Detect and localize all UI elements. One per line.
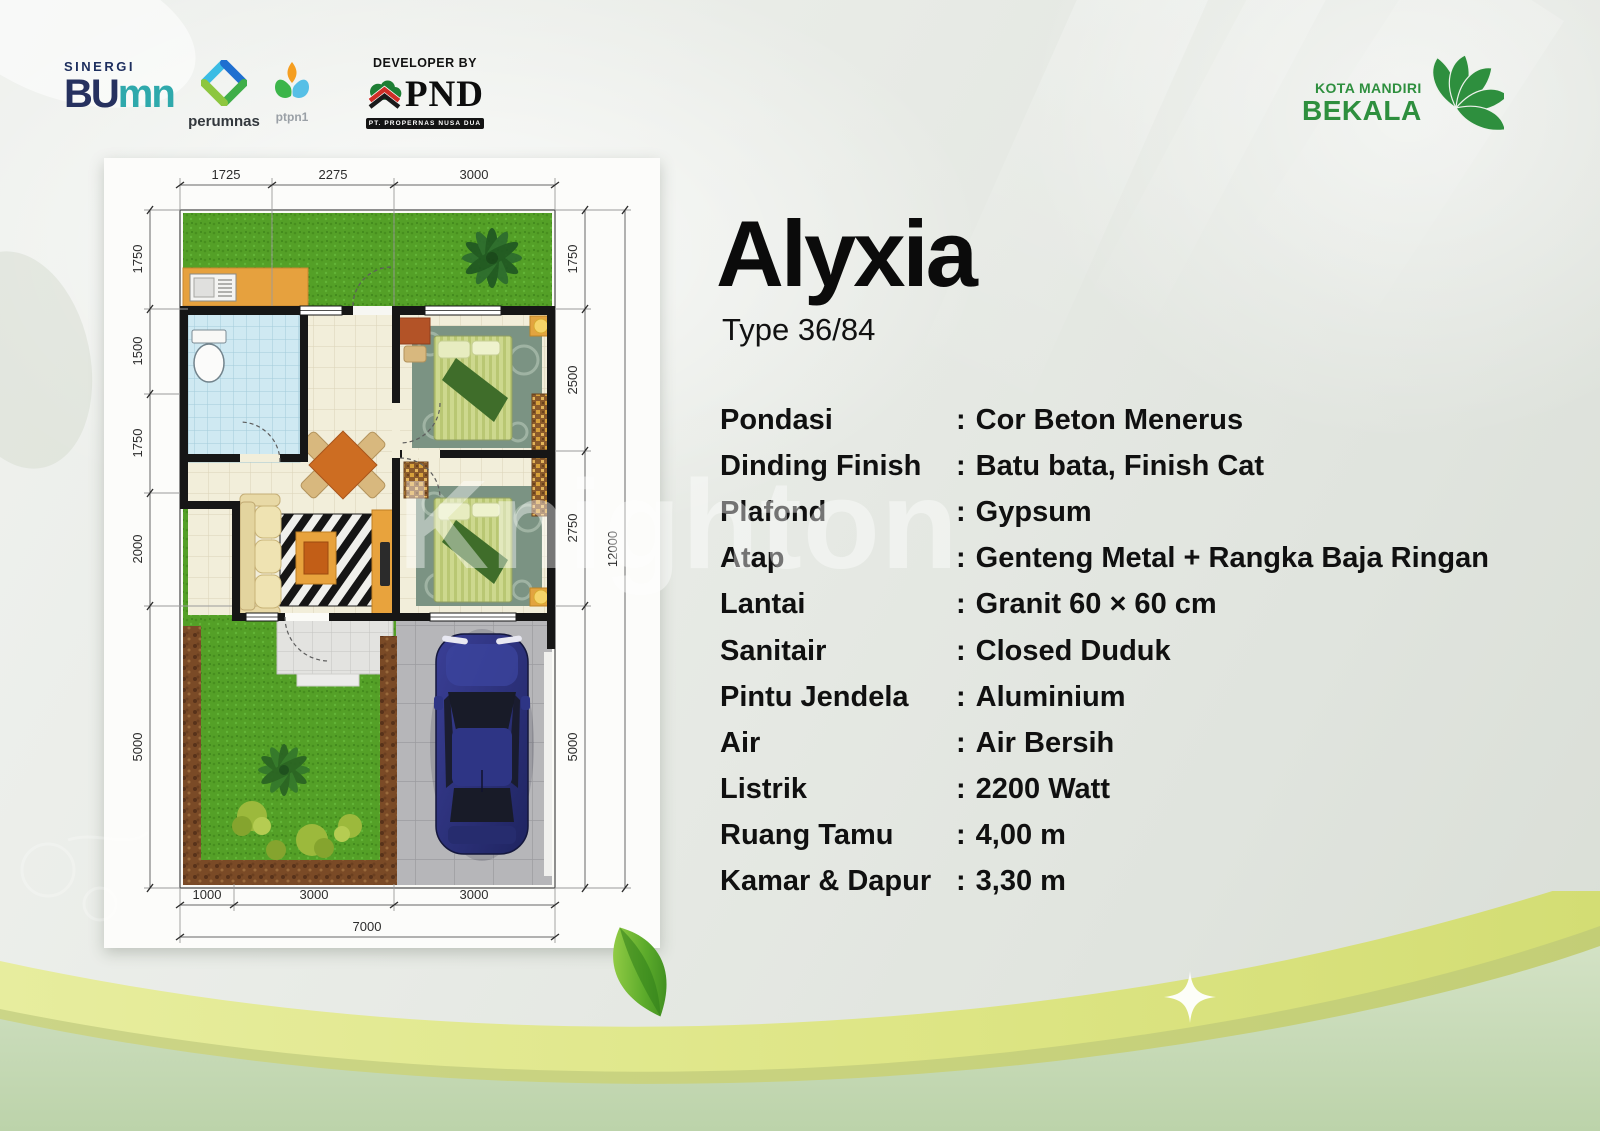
dimension-label: 5000 [565,733,580,762]
spec-value: Batu bata, Finish Cat [976,450,1264,483]
type-subtitle: Type 36/84 [722,312,875,348]
spec-colon: : [956,773,966,806]
spec-label: Listrik [720,773,956,806]
pnd-wordmark: PND [405,73,484,116]
spec-value: 4,00 m [976,819,1066,852]
spec-colon: : [956,681,966,714]
dining-set [299,430,386,499]
spec-label: Pintu Jendela [720,681,956,714]
spec-label: Dinding Finish [720,450,956,483]
spec-label: Ruang Tamu [720,819,956,852]
dimension-label: 1750 [130,245,145,274]
leaf-icon [597,921,683,1025]
spec-colon: : [956,496,966,529]
pnd-house-icon [366,76,403,114]
spec-value: Air Bersih [976,727,1115,760]
perumnas-logo: perumnas [186,60,262,130]
dimension-label: 2750 [565,514,580,543]
bathroom [188,314,300,462]
ptpn1-label: ptpn1 [268,110,316,124]
dimension-label: 2500 [565,366,580,395]
spec-row: Atap:Genteng Metal + Rangka Baja Ringan [720,536,1480,582]
flyer-page: SINERGI BUmn perumnas ptpn1 DEVELOPER BY [0,0,1600,1131]
lamp [534,590,548,604]
spec-row: Air:Air Bersih [720,720,1480,766]
bekala-label: BEKALA [1302,97,1422,125]
spec-value: Closed Duduk [976,635,1171,668]
spec-row: Lantai:Granit 60 × 60 cm [720,582,1480,628]
desk [396,318,430,344]
spec-list: Pondasi:Cor Beton Menerus Dinding Finish… [720,397,1480,905]
car [430,629,534,861]
spec-row: Pondasi:Cor Beton Menerus [720,397,1480,443]
bed [434,336,512,440]
developer-by-caption: DEVELOPER BY [366,56,484,70]
spec-label: Lantai [720,588,956,621]
dimension-label: 5000 [130,733,145,762]
bekala-logo: KOTA MANDIRI BEKALA [1302,50,1504,142]
page-title: Alyxia [716,200,975,308]
spec-label: Air [720,727,956,760]
spec-value: Granit 60 × 60 cm [976,588,1217,621]
bedroom-1 [396,316,552,450]
kota-mandiri-label: KOTA MANDIRI [1302,81,1422,95]
dimension-label: 1750 [130,429,145,458]
spec-label: Pondasi [720,404,956,437]
spec-row: Dinding Finish:Batu bata, Finish Cat [720,443,1480,489]
bekala-leaves-icon [1408,50,1504,142]
spec-row: Plafond:Gypsum [720,489,1480,535]
background-blob [0,238,111,482]
dimension-label: 1500 [130,337,145,366]
spec-label: Plafond [720,496,956,529]
perumnas-label: perumnas [186,113,262,130]
spec-colon: : [956,727,966,760]
spec-value: Genteng Metal + Rangka Baja Ringan [976,542,1489,575]
spec-value: Cor Beton Menerus [976,404,1243,437]
dimension-label: 2000 [130,535,145,564]
spec-colon: : [956,450,966,483]
spec-colon: : [956,542,966,575]
floor-plan-panel: 1725 2275 3000 1750 1500 1750 2000 5000 … [104,158,660,948]
floor-plan: 1725 2275 3000 1750 1500 1750 2000 5000 … [104,158,660,948]
spec-label: Sanitair [720,635,956,668]
spec-label: Atap [720,542,956,575]
bed [434,498,512,602]
dimension-label: 3000 [460,167,489,182]
pnd-developer-logo: DEVELOPER BY PND PT. PROPERNAS NUSA DUA [366,56,484,129]
spec-value: Aluminium [976,681,1126,714]
spec-colon: : [956,819,966,852]
sinergi-bumn-logo: SINERGI BUmn [64,60,174,114]
ptpn1-leaf-icon [273,60,311,104]
kitchen-counter [183,268,308,306]
spec-colon: : [956,404,966,437]
sofa [240,494,281,618]
lamp [534,319,548,333]
dimension-label: 1750 [565,245,580,274]
bottom-swoosh [0,891,1600,1131]
spec-row: Ruang Tamu:4,00 m [720,813,1480,859]
pnd-subtitle-bar: PT. PROPERNAS NUSA DUA [366,118,484,129]
spec-row: Sanitair:Closed Duduk [720,628,1480,674]
ptpn1-logo: ptpn1 [268,60,316,124]
spec-row: Listrik:2200 Watt [720,767,1480,813]
spec-value: 2200 Watt [976,773,1110,806]
spec-row: Pintu Jendela:Aluminium [720,674,1480,720]
spec-colon: : [956,588,966,621]
light-ray [1023,0,1348,454]
spec-colon: : [956,635,966,668]
bumn-wordmark: BUmn [64,74,174,114]
spec-value: Gypsum [976,496,1092,529]
coffee-table [296,532,336,584]
dimension-label: 2275 [319,167,348,182]
perumnas-diamond-icon [201,60,247,106]
dimension-label: 12000 [605,531,620,567]
dimension-label: 1725 [212,167,241,182]
